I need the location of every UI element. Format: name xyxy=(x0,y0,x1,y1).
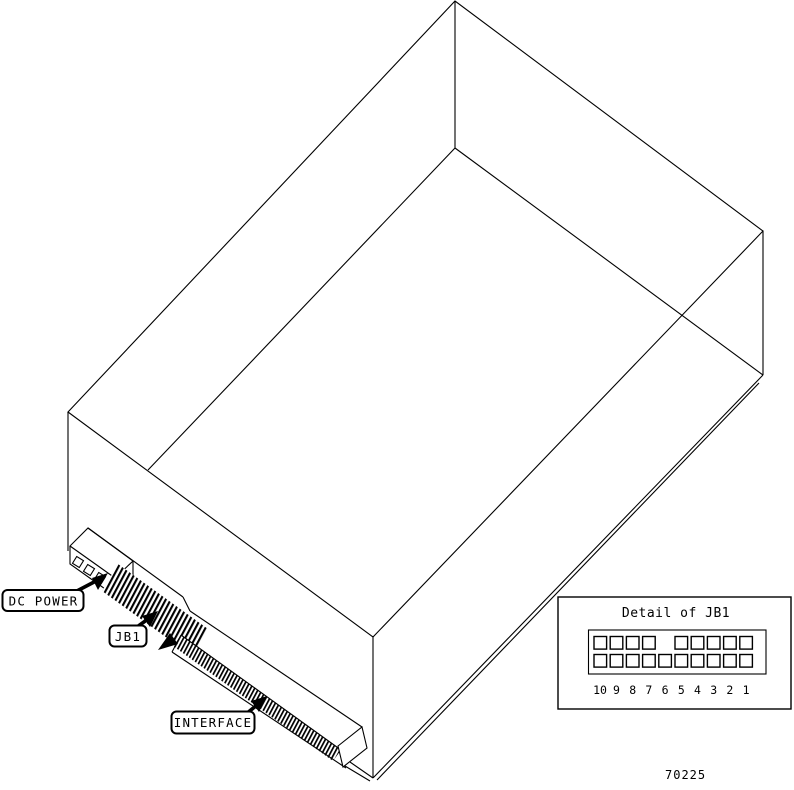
dc-pin xyxy=(72,556,83,567)
jumper-pin-2-bottom xyxy=(724,655,737,668)
interior-left-edge xyxy=(148,148,455,470)
jb1-label: JB1 xyxy=(115,629,141,644)
pin-number-3: 3 xyxy=(710,683,717,697)
jumper-pin-7-top xyxy=(643,637,656,650)
jumper-pin-2-top xyxy=(724,637,737,650)
jumper-pin-1-top xyxy=(740,637,753,650)
pin-number-8: 8 xyxy=(629,683,636,697)
dc-power-label: DC POWER xyxy=(9,594,79,609)
jumper-pin-row-top xyxy=(594,637,752,650)
base-plate-strip-right xyxy=(377,383,759,780)
interior-right-edge xyxy=(455,148,763,375)
pin-number-5: 5 xyxy=(678,683,685,697)
jumper-pin-6-bottom xyxy=(659,655,672,668)
pin-number-2: 2 xyxy=(726,683,733,697)
jumper-pin-8-bottom xyxy=(626,655,639,668)
technical-figure-page: DC POWER JB1 INTERFACE Detail of JB1 xyxy=(0,0,794,790)
jumper-pin-5-top xyxy=(675,637,688,650)
jumper-pin-10-top xyxy=(594,637,607,650)
jumper-pin-4-top xyxy=(691,637,704,650)
dc-pin xyxy=(83,564,94,575)
pin-number-9: 9 xyxy=(613,683,620,697)
callout-jb1: JB1 xyxy=(110,611,159,647)
pin-number-7: 7 xyxy=(645,683,652,697)
pin-number-4: 4 xyxy=(694,683,701,697)
jumper-pin-9-top xyxy=(610,637,623,650)
disk-drive-isometric-figure: DC POWER JB1 INTERFACE Detail of JB1 xyxy=(0,0,794,790)
jumper-pin-10-bottom xyxy=(594,655,607,668)
jb1-recess-edge xyxy=(183,597,190,611)
jumper-pin-7-bottom xyxy=(643,655,656,668)
drive-top-face xyxy=(68,1,763,637)
jumper-pin-5-bottom xyxy=(675,655,688,668)
jumper-pin-9-bottom xyxy=(610,655,623,668)
figure-number: 70225 xyxy=(665,768,706,782)
jumper-pin-8-top xyxy=(626,637,639,650)
pin-number-labels: 10 9 8 7 6 5 4 3 2 1 xyxy=(593,683,750,697)
jb1-detail-inset: Detail of JB1 xyxy=(558,597,791,709)
interface-end-cap xyxy=(338,727,367,767)
jumper-pin-4-bottom xyxy=(691,655,704,668)
interface-contact-teeth xyxy=(173,635,341,761)
jumper-pin-3-top xyxy=(707,637,720,650)
callout-interface: INTERFACE xyxy=(172,696,268,734)
pin-number-1: 1 xyxy=(743,683,750,697)
jumper-pin-1-bottom xyxy=(740,655,753,668)
interface-label: INTERFACE xyxy=(174,715,253,730)
callout-dc-power: DC POWER xyxy=(3,573,109,611)
pin-number-10: 10 xyxy=(593,683,607,697)
pin-number-6: 6 xyxy=(662,683,669,697)
detail-inset-title: Detail of JB1 xyxy=(622,606,730,621)
jumper-pin-row-bottom xyxy=(594,655,752,668)
jumper-pin-3-bottom xyxy=(707,655,720,668)
